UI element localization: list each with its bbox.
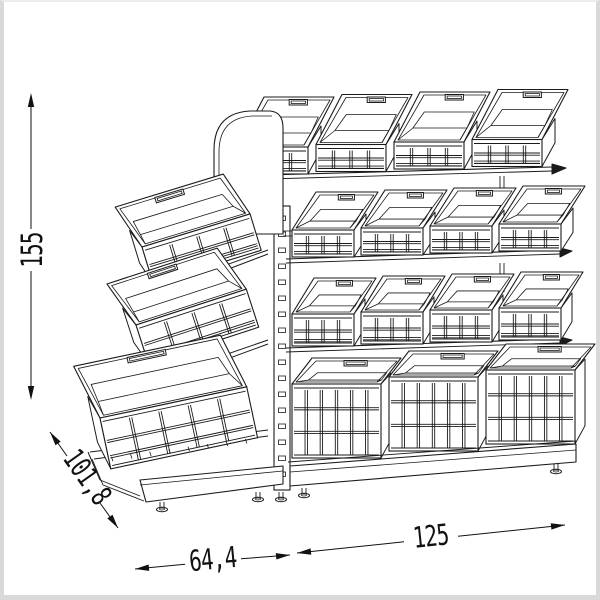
bin [499,186,585,251]
left-base [140,466,283,512]
shelving-rack-technical-drawing: 155 101,8 64,4 125 [0,0,600,600]
bin [486,344,595,444]
dimension-label-front-width: 125 [411,518,450,555]
bin [389,351,498,451]
leveling-foot [157,502,168,512]
leveling-foot [551,464,562,474]
leveling-foot [253,492,264,502]
rack-line-art [74,90,595,512]
bin [499,272,583,340]
leveling-foot [299,488,310,498]
bin [292,358,401,458]
bin [472,90,568,167]
dimension-label-height: 155 [16,232,49,268]
leveling-foot [276,492,287,502]
drawing-canvas: 155 101,8 64,4 125 [0,0,600,600]
dimension-label-side-width: 64,4 [188,540,238,578]
